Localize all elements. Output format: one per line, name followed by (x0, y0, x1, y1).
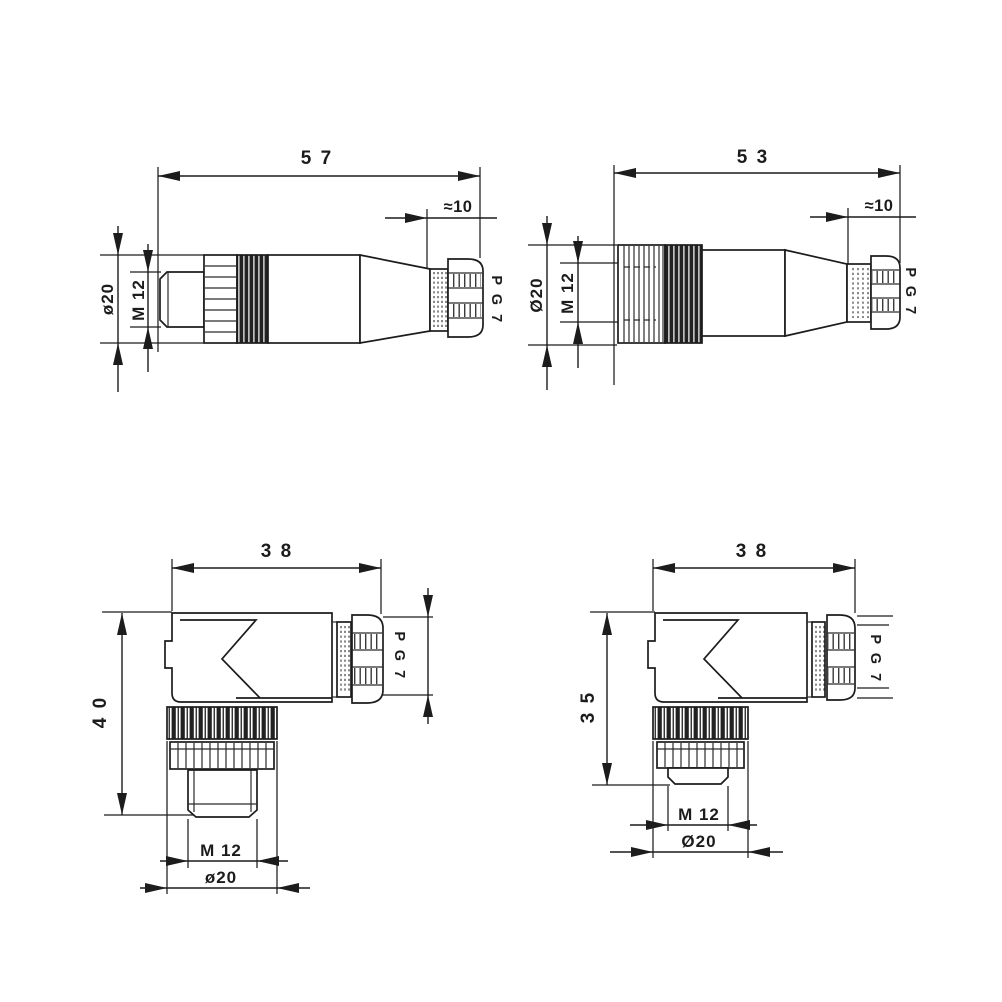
label-outer-diameter-c: ø20 (205, 868, 237, 887)
label-overall-length-a: 5 7 (301, 148, 333, 169)
coupling-nut-c (167, 707, 277, 739)
label-outer-diameter-a: ø20 (98, 283, 117, 315)
thread-stub-c (188, 770, 257, 817)
gland-cap-knurl-a (449, 274, 481, 287)
gland-cap-knurl-b (872, 271, 898, 283)
label-mating-thread-d: M 12 (678, 805, 720, 824)
body-taper-a (360, 255, 430, 343)
label-cable-gland-thread-d: P G 7 (867, 634, 883, 683)
label-cable-gland-thread-b: P G 7 (902, 267, 918, 316)
label-mating-thread-a: M 12 (129, 279, 148, 321)
gland-cap-knurl-a (449, 304, 481, 317)
gland-cap-knurl-c (353, 668, 380, 684)
label-mating-thread-c: M 12 (200, 841, 242, 860)
page-background (0, 0, 1002, 1002)
gland-cap-c (352, 615, 383, 703)
drawing-canvas: 5 7 ≈10 ø20 M 12 (0, 0, 1002, 1002)
gland-neck-d (812, 622, 825, 697)
coupling-nut-b (618, 245, 665, 343)
gland-neck-b (847, 264, 871, 322)
body-shell-b (702, 250, 785, 336)
gland-cap-knurl-c (353, 634, 380, 649)
label-width-d: 3 8 (736, 541, 768, 562)
connector-body-b: P G 7 (618, 245, 918, 343)
gland-cap-b (871, 256, 900, 329)
label-cable-gland-thread-c: P G 7 (391, 631, 407, 680)
label-height-c: 4 0 (90, 696, 111, 728)
label-width-c: 3 8 (261, 541, 293, 562)
label-cable-gland-thread-a: P G 7 (488, 275, 504, 324)
knurled-ring-a (237, 255, 268, 343)
gland-cap-knurl-d (828, 668, 853, 683)
gland-cap-a (448, 259, 483, 337)
label-gland-length-a: ≈10 (444, 198, 473, 216)
thread-stub-a (160, 272, 204, 327)
label-height-d: 3 5 (578, 691, 599, 723)
thread-stub-d (668, 768, 728, 784)
label-mating-thread-b: M 12 (558, 272, 577, 314)
gland-neck-a (430, 269, 448, 331)
connector-body-a: P G 7 (160, 255, 504, 343)
label-gland-length-b: ≈10 (865, 197, 894, 215)
angled-housing-c (165, 613, 332, 702)
gland-cap-d (827, 615, 855, 700)
gland-cap-knurl-b (872, 299, 898, 311)
label-overall-length-b: 5 3 (737, 147, 769, 168)
gland-cap-knurl-d (828, 634, 853, 649)
knurled-ring-b (665, 245, 702, 343)
connector-dimension-drawing: 5 7 ≈10 ø20 M 12 (0, 0, 1002, 1002)
label-outer-diameter-b: Ø20 (527, 277, 546, 312)
label-outer-diameter-d: Ø20 (681, 832, 716, 851)
coupling-nut-d (653, 707, 748, 739)
knurled-collar-d (657, 742, 744, 768)
body-taper-b (785, 250, 847, 336)
angled-housing-d (648, 613, 807, 702)
body-shell-a (268, 255, 360, 343)
